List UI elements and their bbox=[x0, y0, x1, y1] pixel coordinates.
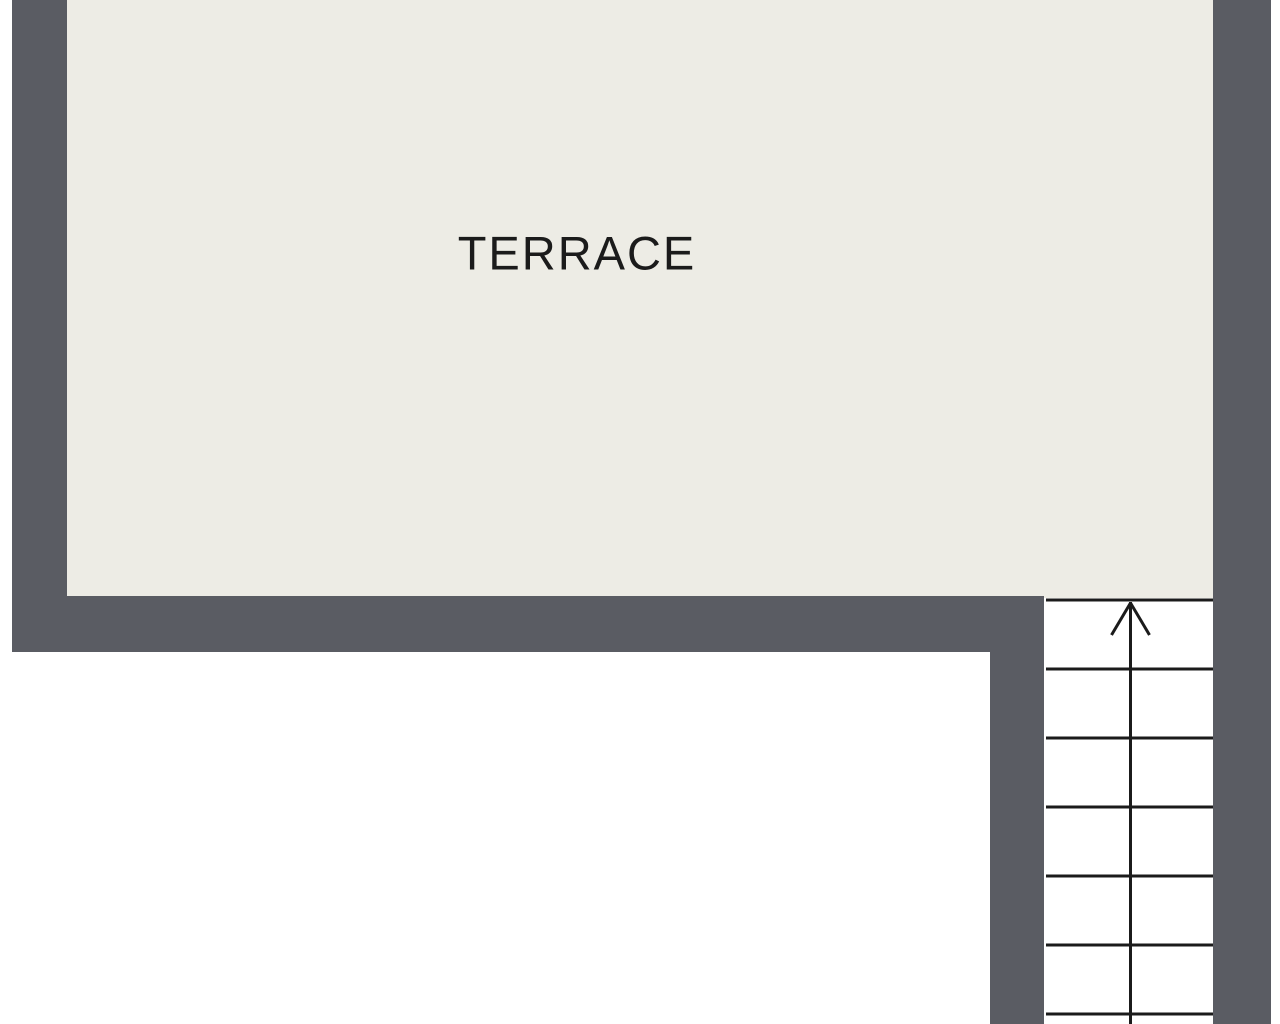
arrow-up-icon bbox=[1131, 603, 1150, 635]
wall-right bbox=[1213, 0, 1271, 1024]
wall-stairs-left bbox=[990, 650, 1044, 1024]
staircase bbox=[1046, 598, 1213, 1024]
wall-bottom-terrace bbox=[12, 596, 1044, 652]
arrow-up-icon bbox=[1112, 603, 1131, 635]
wall-left bbox=[12, 0, 67, 652]
terrace-room: TERRACE bbox=[67, 0, 1213, 598]
floor-plan: TERRACE bbox=[0, 0, 1280, 1024]
staircase-drawing bbox=[1046, 598, 1213, 1024]
room-label-terrace: TERRACE bbox=[458, 226, 697, 281]
